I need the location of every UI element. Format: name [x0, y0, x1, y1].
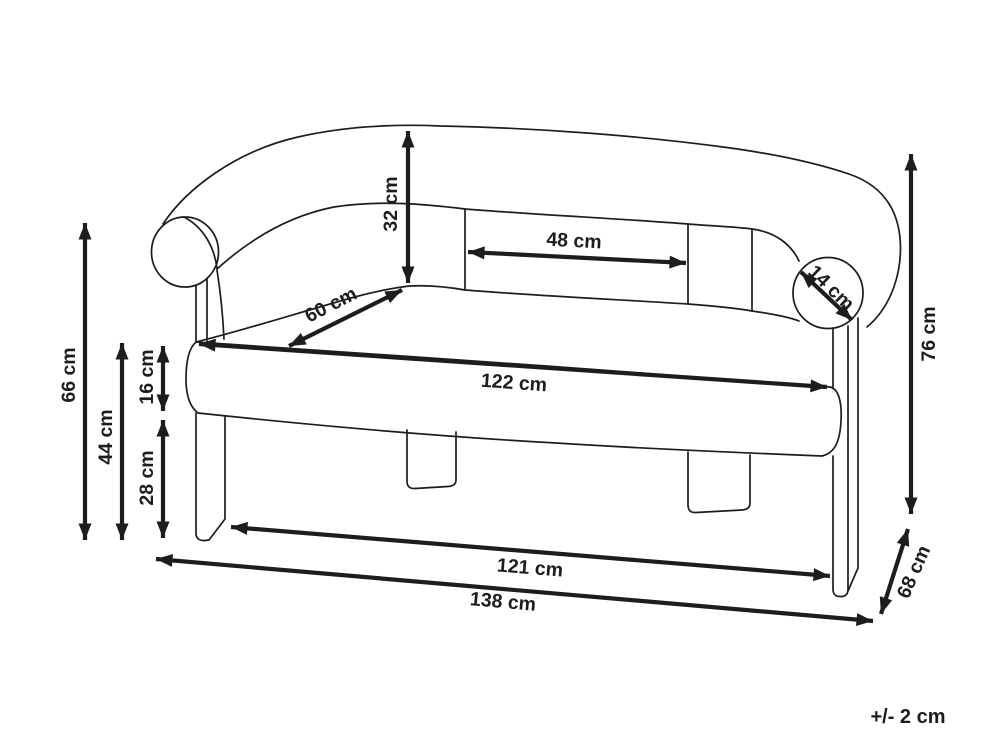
- dimension-label-28: 28 cm: [136, 450, 158, 505]
- dimension-label-60: 60 cm: [301, 283, 360, 328]
- dimension-backrest-height-32: 32 cm: [380, 131, 408, 283]
- dimension-label-76: 76 cm: [918, 306, 940, 361]
- dimension-seat-top-height-44: 44 cm: [95, 343, 122, 540]
- left-armrest-endcap: [152, 217, 219, 287]
- seat-back-curve: [196, 286, 799, 342]
- dimension-label-121: 121 cm: [496, 554, 564, 581]
- dimension-arrow-48: [468, 252, 686, 263]
- dimension-label-32: 32 cm: [380, 176, 402, 231]
- dimension-back-panel-width-48: 48 cm: [468, 229, 686, 263]
- dimension-label-138: 138 cm: [469, 588, 537, 616]
- dimension-overall-depth-68: 68 cm: [881, 529, 935, 614]
- dimension-label-16: 16 cm: [136, 349, 158, 404]
- dimension-diagram-canvas: 66 cm 44 cm 16 cm 28 cm 32 cm 48 cm: [0, 0, 999, 749]
- sofa-outline: [152, 125, 901, 596]
- left-leg-lower: [196, 413, 225, 541]
- dimension-seat-width-122: 122 cm: [199, 344, 827, 396]
- left-armrest-junction: [184, 217, 217, 268]
- middle-leg-front: [407, 430, 456, 489]
- seat-cushion: [186, 342, 841, 456]
- backrest-outer-contour: [163, 125, 900, 327]
- dimension-label-14: 14 cm: [803, 261, 858, 315]
- dimension-under-seat-height-28: 28 cm: [136, 420, 163, 538]
- left-leg-upper: [196, 270, 224, 343]
- tolerance-note: +/- 2 cm: [870, 706, 945, 728]
- right-legs: [833, 318, 858, 597]
- dimension-label-44: 44 cm: [95, 409, 117, 464]
- backrest-bottom-seam: [217, 203, 799, 269]
- dimension-label-66: 66 cm: [58, 347, 80, 402]
- sofa-dimension-diagram: 66 cm 44 cm 16 cm 28 cm 32 cm 48 cm: [0, 0, 999, 749]
- dimension-armrest-diameter-14: 14 cm: [801, 261, 859, 320]
- dimension-back-height-66: 66 cm: [58, 223, 85, 540]
- middle-leg-rear: [688, 452, 750, 513]
- dimension-label-48: 48 cm: [546, 229, 602, 254]
- dimension-seat-thickness-16: 16 cm: [136, 346, 163, 411]
- dimension-label-122: 122 cm: [480, 370, 548, 397]
- dimension-seat-depth-60: 60 cm: [289, 283, 402, 346]
- dimension-overall-height-76: 76 cm: [911, 154, 940, 514]
